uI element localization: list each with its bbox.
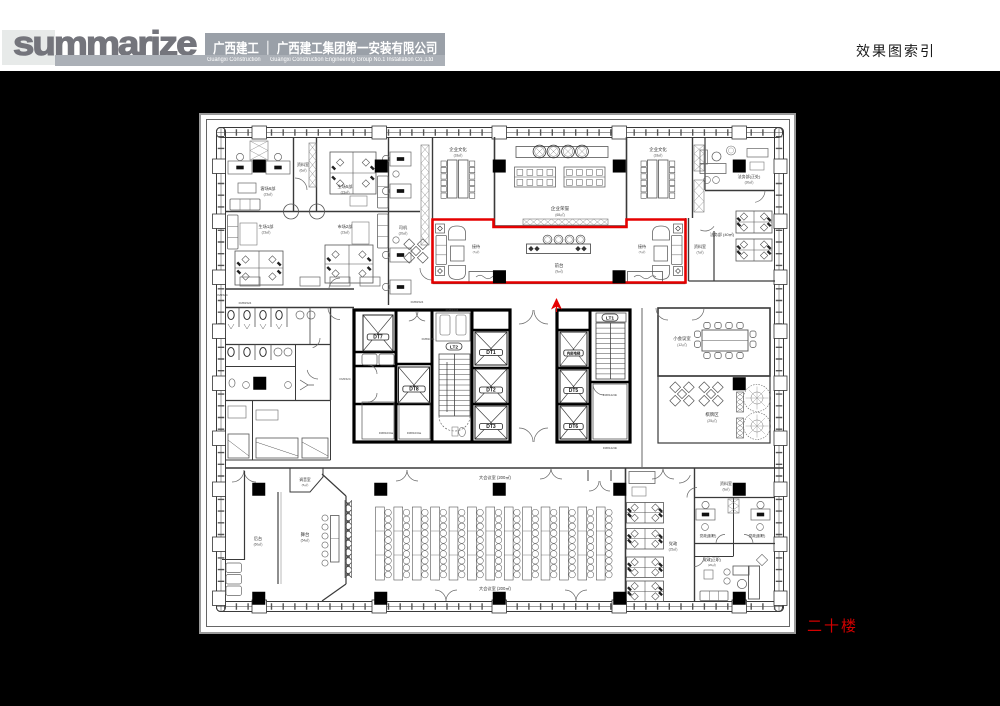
svg-text:(25㎡): (25㎡) [707, 418, 716, 423]
svg-text:FM1524: FM1524 [216, 293, 227, 297]
svg-text:大会议室 (200㎡): 大会议室 (200㎡) [479, 585, 511, 592]
svg-text:市场2部: 市场2部 [338, 223, 353, 230]
svg-text:(54㎡): (54㎡) [301, 538, 310, 543]
svg-text:(23㎡): (23㎡) [264, 192, 273, 197]
svg-text:党政(副职): 党政(副职) [749, 533, 766, 538]
svg-text:FM8103b: FM8103b [422, 337, 435, 341]
svg-text:FM81034a: FM81034a [379, 431, 394, 435]
svg-text:(9㎡): (9㎡) [555, 269, 563, 274]
svg-text:(5㎡): (5㎡) [302, 482, 309, 487]
svg-text:小会议室: 小会议室 [673, 335, 691, 342]
svg-text:(6㎡): (6㎡) [299, 168, 306, 173]
svg-text:棋牌区: 棋牌区 [705, 411, 719, 418]
svg-text:FM81034a: FM81034a [407, 431, 422, 435]
svg-text:LT2: LT2 [450, 345, 459, 351]
svg-text:(7㎡): (7㎡) [473, 249, 480, 254]
svg-text:企业文化: 企业文化 [449, 146, 467, 153]
svg-text:生场5部: 生场5部 [338, 183, 353, 190]
svg-text:企业荣誉: 企业荣誉 [551, 205, 570, 212]
svg-text:内部电梯: 内部电梯 [567, 351, 581, 356]
svg-text:大会议室 (200㎡): 大会议室 (200㎡) [479, 474, 511, 481]
svg-text:FM81524: FM81524 [411, 300, 424, 304]
svg-text:舞台: 舞台 [301, 531, 310, 538]
svg-text:(9㎡): (9㎡) [722, 487, 729, 492]
svg-text:FM81224b: FM81224b [603, 393, 618, 397]
svg-text:(18㎡): (18㎡) [654, 153, 663, 158]
svg-text:(20㎡): (20㎡) [708, 562, 716, 567]
svg-text:资料室: 资料室 [720, 480, 732, 486]
svg-text:DT7: DT7 [373, 335, 383, 341]
svg-text:FM81524: FM81524 [239, 301, 252, 305]
svg-text:DT8: DT8 [409, 387, 419, 393]
svg-text:(7㎡): (7㎡) [696, 250, 703, 255]
svg-text:客场6部: 客场6部 [261, 185, 276, 192]
svg-text:接待: 接待 [472, 243, 480, 249]
svg-text:FM81034: FM81034 [446, 308, 459, 312]
svg-text:DT2: DT2 [486, 388, 496, 394]
svg-text:生场1部: 生场1部 [259, 223, 274, 230]
svg-text:司机: 司机 [399, 224, 408, 231]
svg-text:(68㎡): (68㎡) [555, 212, 564, 217]
svg-text:法务部(正处): 法务部(正处) [738, 173, 761, 179]
svg-text:(30㎡): (30㎡) [745, 180, 754, 185]
svg-text:党政: 党政 [669, 540, 678, 547]
svg-text:前台: 前台 [555, 262, 564, 269]
svg-text:企业文化: 企业文化 [649, 146, 667, 153]
svg-text:(23㎡): (23㎡) [341, 190, 350, 195]
svg-text:后台: 后台 [254, 535, 262, 542]
svg-text:(60㎡): (60㎡) [254, 542, 263, 547]
svg-text:DT1: DT1 [486, 350, 496, 356]
svg-text:(23㎡): (23㎡) [341, 230, 350, 235]
svg-text:接待: 接待 [638, 243, 646, 249]
svg-text:(7㎡): (7㎡) [639, 249, 646, 254]
svg-text:DT6: DT6 [569, 424, 579, 430]
svg-text:DT3: DT3 [486, 424, 496, 430]
svg-text:LT1: LT1 [606, 316, 615, 322]
svg-text:(18㎡): (18㎡) [454, 153, 463, 158]
svg-text:党政(副职): 党政(副职) [700, 533, 717, 538]
svg-text:FM81224b: FM81224b [603, 446, 618, 450]
svg-text:(23㎡): (23㎡) [262, 230, 271, 235]
svg-text:党政(正职): 党政(正职) [703, 557, 721, 562]
svg-text:调音室: 调音室 [299, 477, 311, 482]
svg-text:(25㎡): (25㎡) [669, 547, 678, 552]
svg-text:(20㎡): (20㎡) [399, 231, 408, 236]
svg-text:资料室: 资料室 [297, 161, 309, 167]
svg-text:FM1524: FM1524 [339, 377, 350, 381]
svg-text:资料室: 资料室 [694, 243, 706, 249]
svg-text:DT5: DT5 [569, 388, 579, 394]
svg-text:(12㎡): (12㎡) [677, 342, 686, 347]
